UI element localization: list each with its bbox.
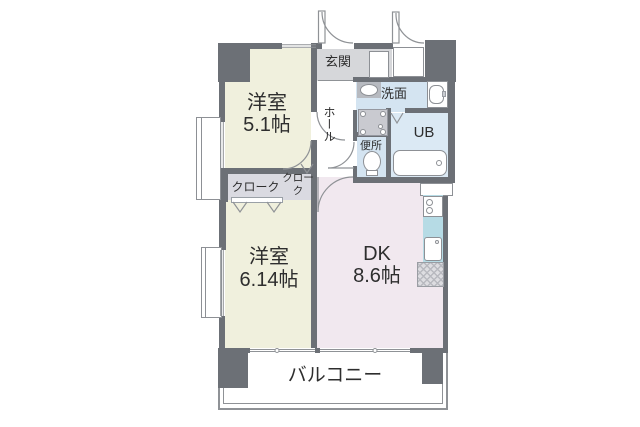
balcony-label: バルコニー xyxy=(260,366,410,387)
closet-front xyxy=(231,197,283,203)
shoe-cabinet xyxy=(369,51,389,78)
wall-segment xyxy=(353,166,357,177)
dk-name: DK xyxy=(330,243,424,265)
bay-window-2-line xyxy=(205,247,206,318)
kitchen-sink-icon xyxy=(424,237,442,261)
wall-segment xyxy=(354,43,393,49)
unit-bath-label: UB xyxy=(409,125,439,142)
pan-foot-icon xyxy=(380,129,386,135)
dk-area: 8.6帖 xyxy=(330,265,424,287)
bay-window-1 xyxy=(196,117,221,200)
pan-foot-icon xyxy=(360,111,366,117)
bedroom1-name: 洋室 xyxy=(221,92,313,114)
bedroom1-area: 5.1帖 xyxy=(221,114,313,136)
corner-pillar-bottom-left xyxy=(218,348,248,388)
toilet-bowl-icon xyxy=(363,151,381,172)
floorplan-canvas: 洋室 5.1帖 洋室 6.14帖 DK 8.6帖 玄関 ホール 洗面 UB 便所… xyxy=(0,0,640,427)
stove-burner-icon xyxy=(426,199,433,206)
vanity-faucet-icon xyxy=(442,91,446,97)
pan-foot-icon xyxy=(380,111,386,117)
toilet-label: 便所 xyxy=(355,140,387,152)
washbasin-bowl-icon xyxy=(360,84,378,96)
dk-label: DK 8.6帖 xyxy=(330,243,424,287)
wall-segment xyxy=(219,316,225,348)
bedroom2-name: 洋室 xyxy=(221,246,317,269)
bathtub-faucet-icon xyxy=(436,160,442,166)
bedroom1-label: 洋室 5.1帖 xyxy=(221,92,313,136)
trunk-storage xyxy=(393,47,424,77)
bedroom2-area: 6.14帖 xyxy=(221,269,317,292)
bay-window-1-line xyxy=(201,117,202,200)
kitchen-faucet-icon xyxy=(435,240,439,244)
pan-foot-icon xyxy=(360,129,366,135)
wall-segment xyxy=(311,140,317,170)
entrance-label: 玄関 xyxy=(321,55,355,69)
washroom-label: 洗面 xyxy=(378,87,410,101)
wall-segment xyxy=(405,108,448,113)
corner-pillar-top-right xyxy=(425,40,456,81)
wall-segment xyxy=(219,202,226,250)
closet2-label: クローク xyxy=(281,172,315,198)
wall-segment xyxy=(315,348,320,353)
toilet-base-icon xyxy=(366,170,378,176)
hall-label: ホール xyxy=(320,93,335,155)
bedroom2-label: 洋室 6.14帖 xyxy=(221,246,317,292)
pan-drain-icon xyxy=(378,124,383,129)
corner-pillar-bottom-right xyxy=(422,352,443,384)
stove-burner-icon xyxy=(426,207,433,214)
wall-segment xyxy=(448,82,455,183)
closet1-label: クローク xyxy=(228,181,283,194)
